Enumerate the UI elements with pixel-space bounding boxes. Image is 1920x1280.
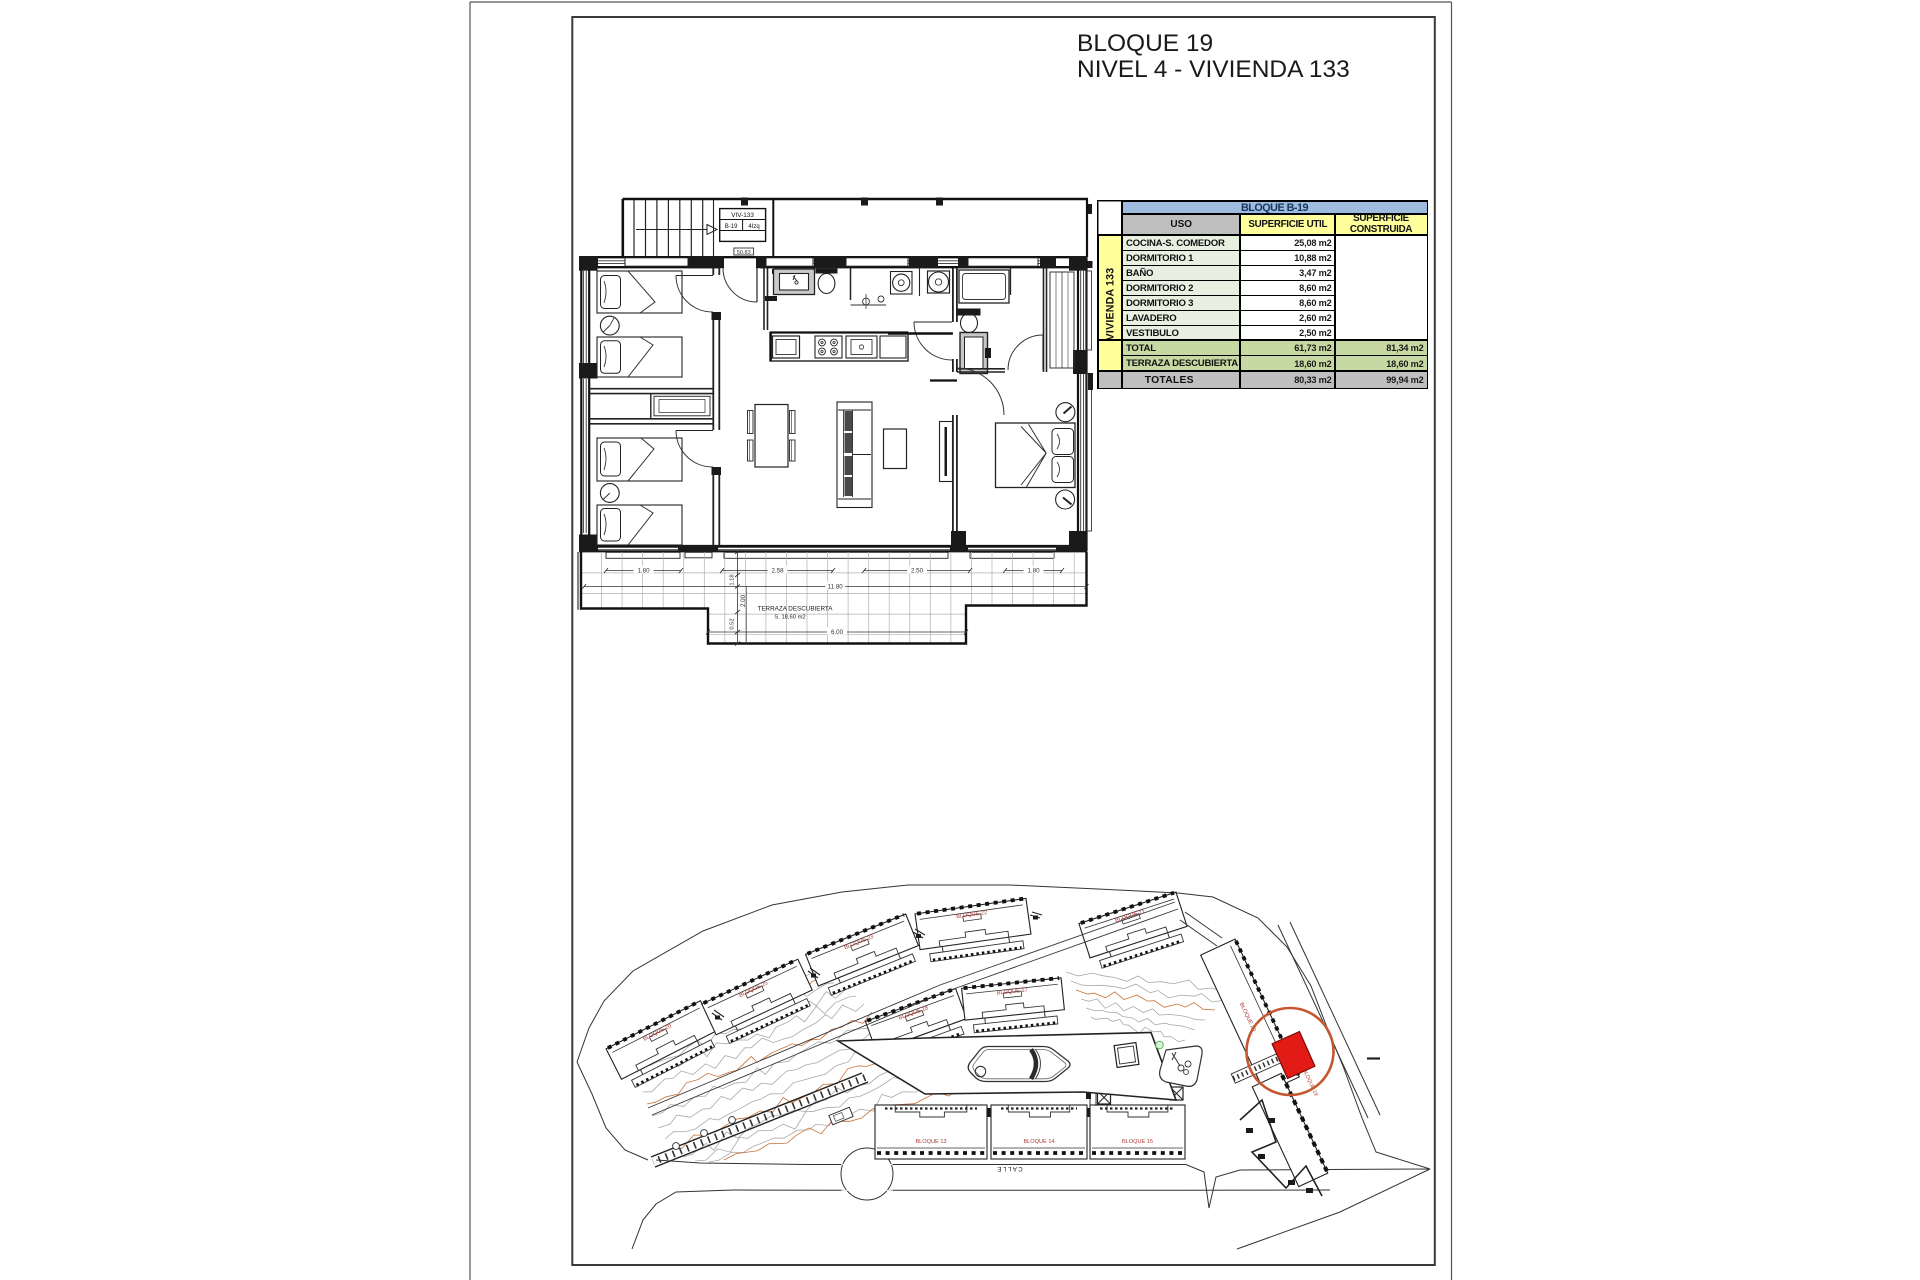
svg-text:4Izq: 4Izq — [748, 224, 759, 230]
svg-text:6.00: 6.00 — [831, 629, 844, 636]
svg-text:BLOQUE 15: BLOQUE 15 — [1122, 1139, 1153, 1145]
svg-text:1.80: 1.80 — [1027, 568, 1040, 575]
svg-text:2.50: 2.50 — [911, 568, 924, 575]
svg-text:11.80: 11.80 — [828, 584, 844, 591]
svg-text:1.80: 1.80 — [637, 568, 650, 575]
svg-text:B-19: B-19 — [725, 224, 738, 230]
svg-text:50.83: 50.83 — [737, 250, 751, 256]
svg-text:0.52: 0.52 — [730, 618, 736, 629]
svg-text:BLOQUE 14: BLOQUE 14 — [1023, 1139, 1054, 1145]
svg-text:BLOQUE 13: BLOQUE 13 — [915, 1139, 946, 1145]
svg-text:TERRAZA DESCUBIERTA: TERRAZA DESCUBIERTA — [758, 606, 834, 613]
svg-text:2.58: 2.58 — [771, 568, 784, 575]
svg-text:C A L L E: C A L L E — [997, 1165, 1022, 1172]
svg-text:2.00: 2.00 — [740, 594, 747, 607]
svg-text:S. 18,60 m2: S. 18,60 m2 — [774, 615, 805, 621]
svg-text:1.18: 1.18 — [730, 574, 736, 585]
svg-text:VIV-133: VIV-133 — [731, 212, 754, 219]
